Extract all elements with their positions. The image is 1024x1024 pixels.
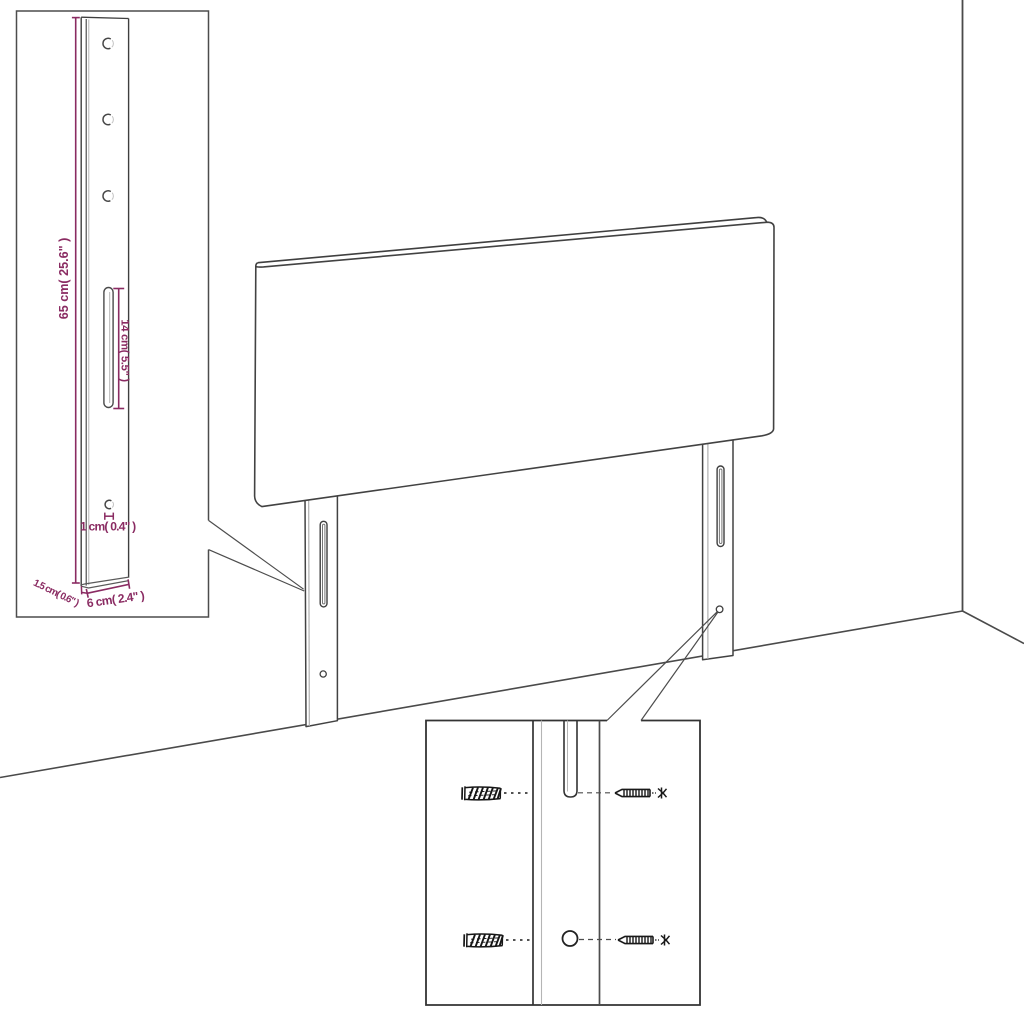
svg-text:65 cm( 25.6" ): 65 cm( 25.6" ) [57,238,71,320]
svg-text:14 cm( 5.5" ): 14 cm( 5.5" ) [119,319,131,382]
svg-text:1 cm( 0.4" ): 1 cm( 0.4" ) [80,520,136,534]
